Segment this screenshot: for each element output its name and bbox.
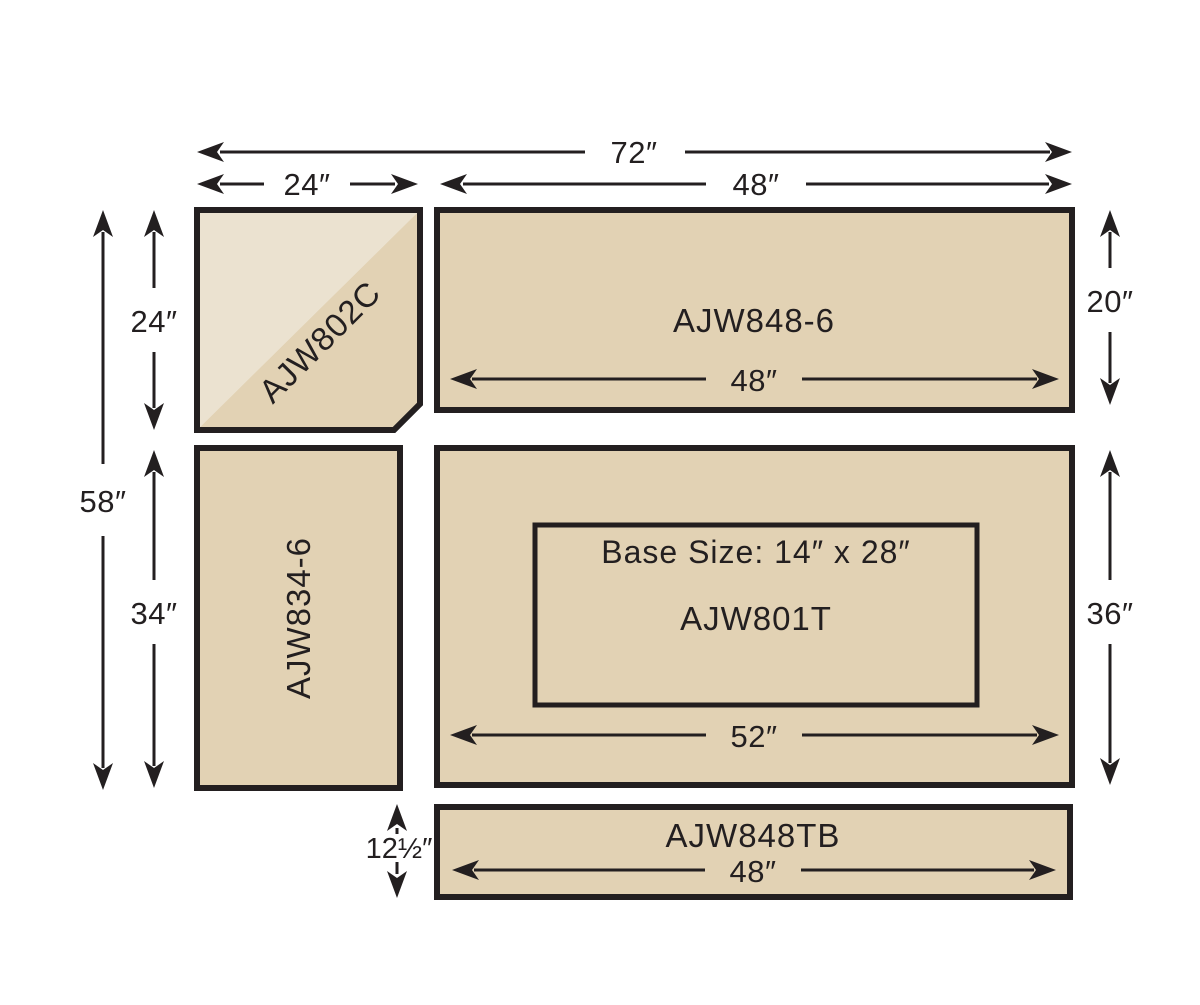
panel-toeboard-label: AJW848TB bbox=[666, 817, 841, 854]
panel-shelf-top: AJW848-6 48″ bbox=[437, 210, 1072, 410]
dim-corner-height-arrow: 24″ bbox=[131, 210, 178, 430]
dim-overall-height-arrow: 58″ bbox=[80, 210, 127, 790]
dim-worktop-height-arrow: 36″ bbox=[1087, 450, 1134, 785]
arrowhead-left-icon bbox=[440, 174, 467, 194]
panel-worktop-label: AJW801T bbox=[680, 600, 832, 637]
arrowhead-left-icon bbox=[197, 174, 224, 194]
dim-toeboard-height-arrow: 12½″ bbox=[366, 804, 433, 898]
dim-corner-width-arrow: 24″ bbox=[197, 167, 418, 202]
arrowhead-down-icon bbox=[387, 871, 407, 898]
dim-side-height-arrow: 34″ bbox=[131, 450, 178, 788]
arrowhead-right-icon bbox=[1045, 174, 1072, 194]
dim-overall-height-label: 58″ bbox=[80, 484, 127, 519]
panel-corner: AJW802C bbox=[197, 210, 420, 430]
arrowhead-right-icon bbox=[391, 174, 418, 194]
dim-right-width-label: 48″ bbox=[733, 167, 780, 202]
dim-shelf-inner-width-label: 48″ bbox=[731, 363, 778, 398]
panel-worktop: Base Size: 14″ x 28″ AJW801T 52″ bbox=[437, 448, 1072, 785]
dim-overall-width-arrow: 72″ bbox=[197, 135, 1072, 170]
dim-side-height-label: 34″ bbox=[131, 596, 178, 631]
dimension-diagram: AJW802C AJW848-6 48″ AJW834-6 Base Size:… bbox=[0, 0, 1200, 1000]
worktop-base-size-label: Base Size: 14″ x 28″ bbox=[601, 534, 910, 570]
diagram-svg: AJW802C AJW848-6 48″ AJW834-6 Base Size:… bbox=[0, 0, 1200, 1000]
dim-worktop-height-label: 36″ bbox=[1087, 596, 1134, 631]
dim-corner-height-label: 24″ bbox=[131, 304, 178, 339]
dim-shelf-height-arrow: 20″ bbox=[1087, 210, 1134, 405]
arrowhead-left-icon bbox=[197, 142, 224, 162]
panel-toeboard: AJW848TB 48″ bbox=[437, 807, 1070, 897]
dim-shelf-height-label: 20″ bbox=[1087, 284, 1134, 319]
dim-overall-width-label: 72″ bbox=[611, 135, 658, 170]
dim-worktop-inner-width-label: 52″ bbox=[731, 719, 778, 754]
dim-corner-width-label: 24″ bbox=[284, 167, 331, 202]
panel-side: AJW834-6 bbox=[197, 448, 400, 788]
dim-toeboard-height-label: 12½″ bbox=[366, 833, 433, 865]
panel-side-label: AJW834-6 bbox=[280, 537, 317, 699]
dim-toeboard-inner-width-label: 48″ bbox=[730, 854, 777, 889]
dim-right-width-arrow: 48″ bbox=[440, 167, 1072, 202]
arrowhead-up-icon bbox=[387, 804, 407, 831]
panel-shelf-top-label: AJW848-6 bbox=[673, 302, 835, 339]
